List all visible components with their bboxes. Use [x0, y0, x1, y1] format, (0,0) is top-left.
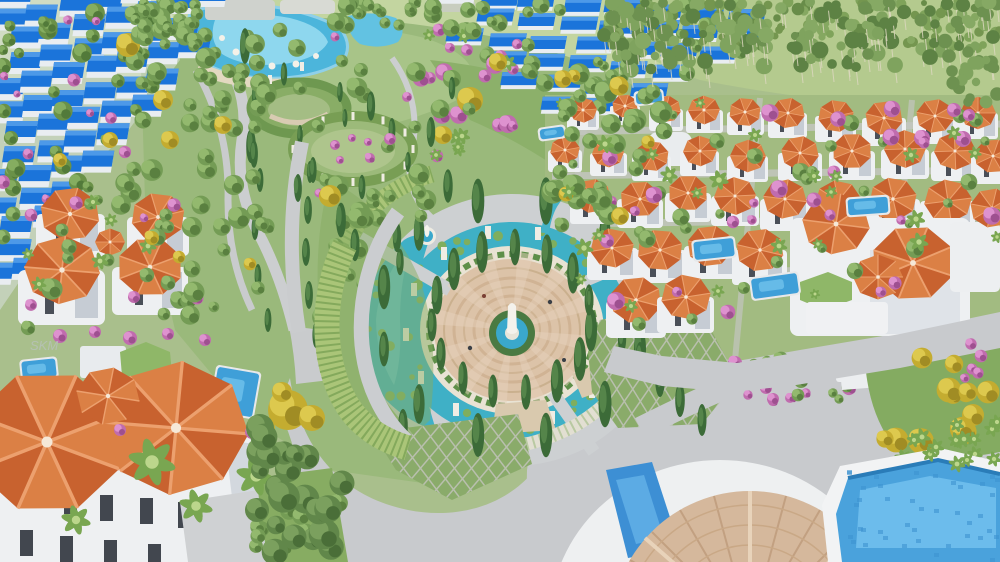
svg-text:SKM: SKM: [30, 338, 58, 353]
